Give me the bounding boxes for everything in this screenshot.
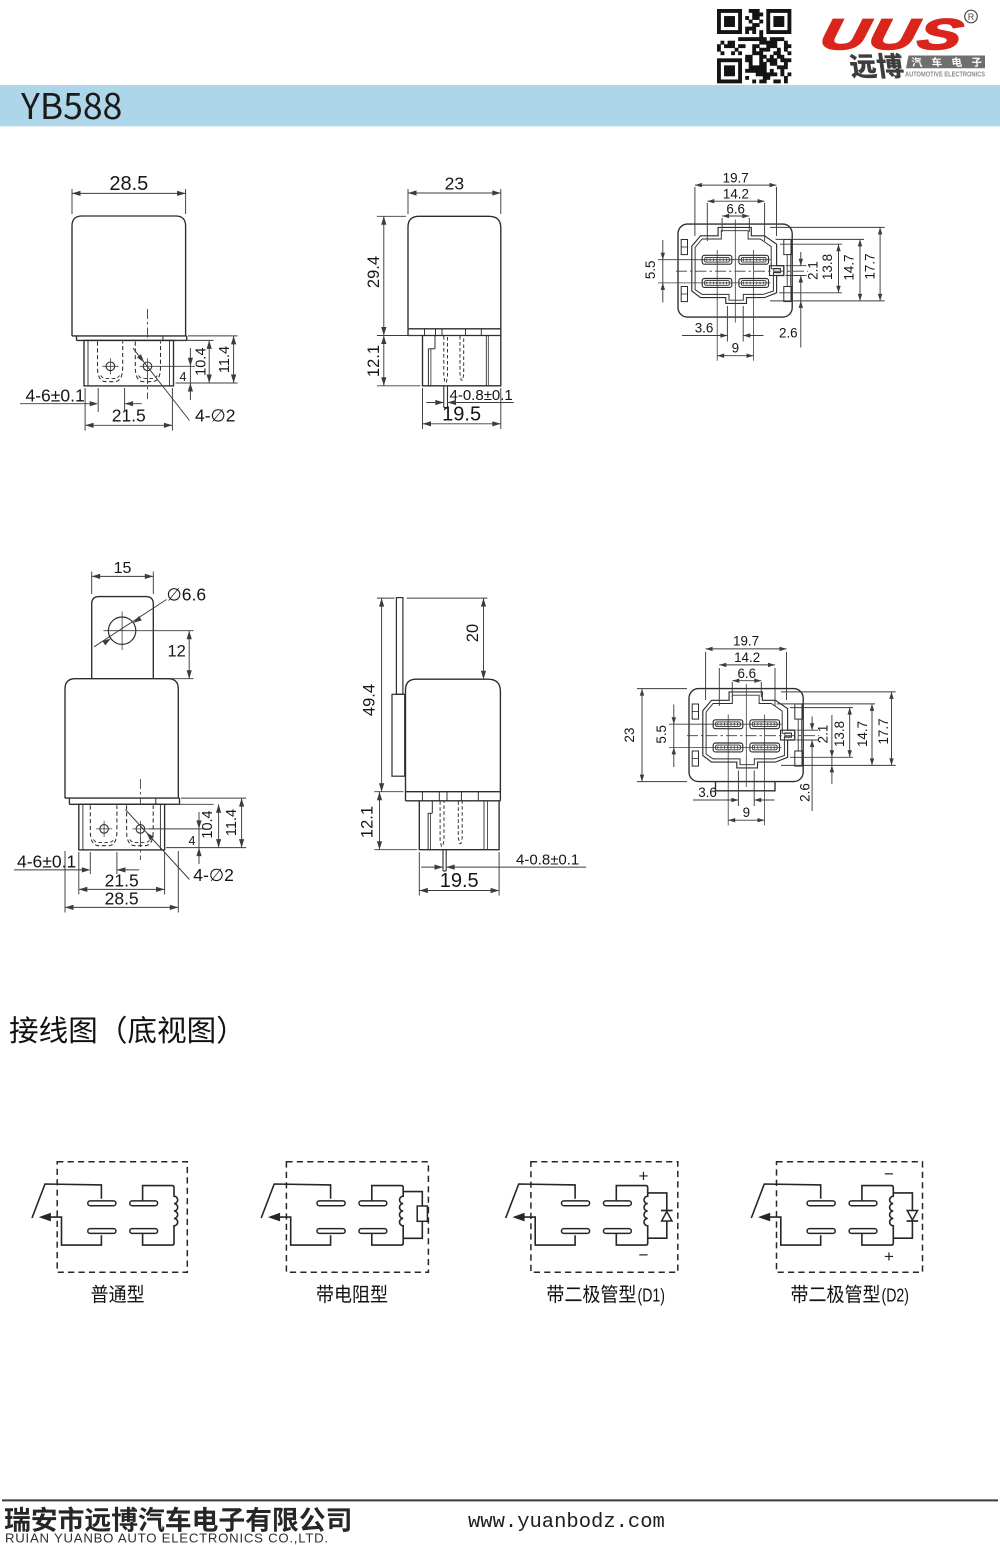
svg-text:9: 9 (743, 805, 750, 820)
svg-text:AUTOMOTIVE ELECTRONICS: AUTOMOTIVE ELECTRONICS (905, 70, 985, 79)
svg-text:RUIAN YUANBO AUTO ELECTRONICS: RUIAN YUANBO AUTO ELECTRONICS CO.,LTD. (5, 1531, 329, 1545)
svg-text:19.7: 19.7 (723, 170, 749, 185)
svg-text:19.5: 19.5 (440, 870, 479, 892)
svg-text:5.5: 5.5 (643, 260, 658, 279)
svg-text:UUS: UUS (816, 10, 969, 58)
svg-text:R: R (968, 12, 975, 22)
svg-text:11.4: 11.4 (224, 809, 240, 836)
svg-text:23: 23 (445, 174, 464, 194)
svg-text:2.1: 2.1 (806, 261, 821, 280)
svg-text:3.6: 3.6 (698, 785, 717, 800)
svg-text:20: 20 (464, 624, 482, 642)
svg-text:17.7: 17.7 (876, 718, 891, 744)
svg-text:12.1: 12.1 (365, 345, 383, 377)
svg-text:49.4: 49.4 (360, 684, 378, 716)
svg-text:−: − (639, 1246, 649, 1265)
svg-text:−: − (884, 1165, 894, 1184)
svg-text:4-∅2: 4-∅2 (193, 865, 234, 885)
svg-text:19.7: 19.7 (733, 634, 759, 649)
svg-text:∅6.6: ∅6.6 (167, 584, 207, 604)
svg-text:6.6: 6.6 (726, 201, 745, 216)
svg-text:4-∅2: 4-∅2 (195, 406, 236, 426)
svg-text:14.2: 14.2 (723, 187, 749, 202)
svg-text:13.8: 13.8 (832, 721, 847, 747)
svg-text:5.5: 5.5 (654, 725, 669, 744)
svg-text:(D2): (D2) (882, 1285, 910, 1306)
svg-text:28.5: 28.5 (109, 173, 148, 195)
svg-text:12: 12 (167, 643, 185, 661)
svg-text:12.1: 12.1 (358, 806, 376, 838)
svg-text:4: 4 (180, 370, 187, 384)
svg-text:10.4: 10.4 (193, 348, 209, 376)
svg-text:4-0.8±0.1: 4-0.8±0.1 (516, 851, 579, 868)
svg-text:4-6±0.1: 4-6±0.1 (17, 852, 76, 872)
svg-text:(D1): (D1) (638, 1285, 666, 1306)
svg-text:21.5: 21.5 (105, 870, 139, 890)
svg-text:13.8: 13.8 (820, 254, 835, 280)
svg-text:19.5: 19.5 (442, 403, 481, 425)
svg-text:17.7: 17.7 (863, 253, 878, 279)
svg-text:4-0.8±0.1: 4-0.8±0.1 (450, 387, 513, 404)
svg-text:2.6: 2.6 (779, 326, 798, 341)
svg-text:9: 9 (732, 340, 739, 355)
svg-text:23: 23 (622, 728, 637, 743)
svg-text:21.5: 21.5 (112, 405, 146, 425)
svg-text:11.4: 11.4 (217, 346, 233, 373)
svg-text:www.yuanbodz.com: www.yuanbodz.com (468, 1511, 665, 1534)
svg-text:14.2: 14.2 (734, 650, 760, 665)
svg-text:2.6: 2.6 (798, 783, 813, 802)
svg-text:4: 4 (188, 834, 195, 848)
svg-text:28.5: 28.5 (105, 889, 139, 909)
svg-text:14.7: 14.7 (855, 721, 870, 747)
svg-text:6.6: 6.6 (737, 666, 756, 681)
svg-text:+: + (884, 1247, 894, 1266)
svg-text:29.4: 29.4 (365, 256, 383, 288)
svg-text:4-6±0.1: 4-6±0.1 (26, 385, 85, 405)
svg-text:3.6: 3.6 (695, 321, 714, 336)
svg-text:10.4: 10.4 (200, 810, 216, 838)
svg-text:14.7: 14.7 (842, 254, 857, 280)
svg-text:+: + (639, 1167, 649, 1186)
svg-text:2.1: 2.1 (816, 725, 831, 744)
svg-text:15: 15 (114, 560, 132, 577)
